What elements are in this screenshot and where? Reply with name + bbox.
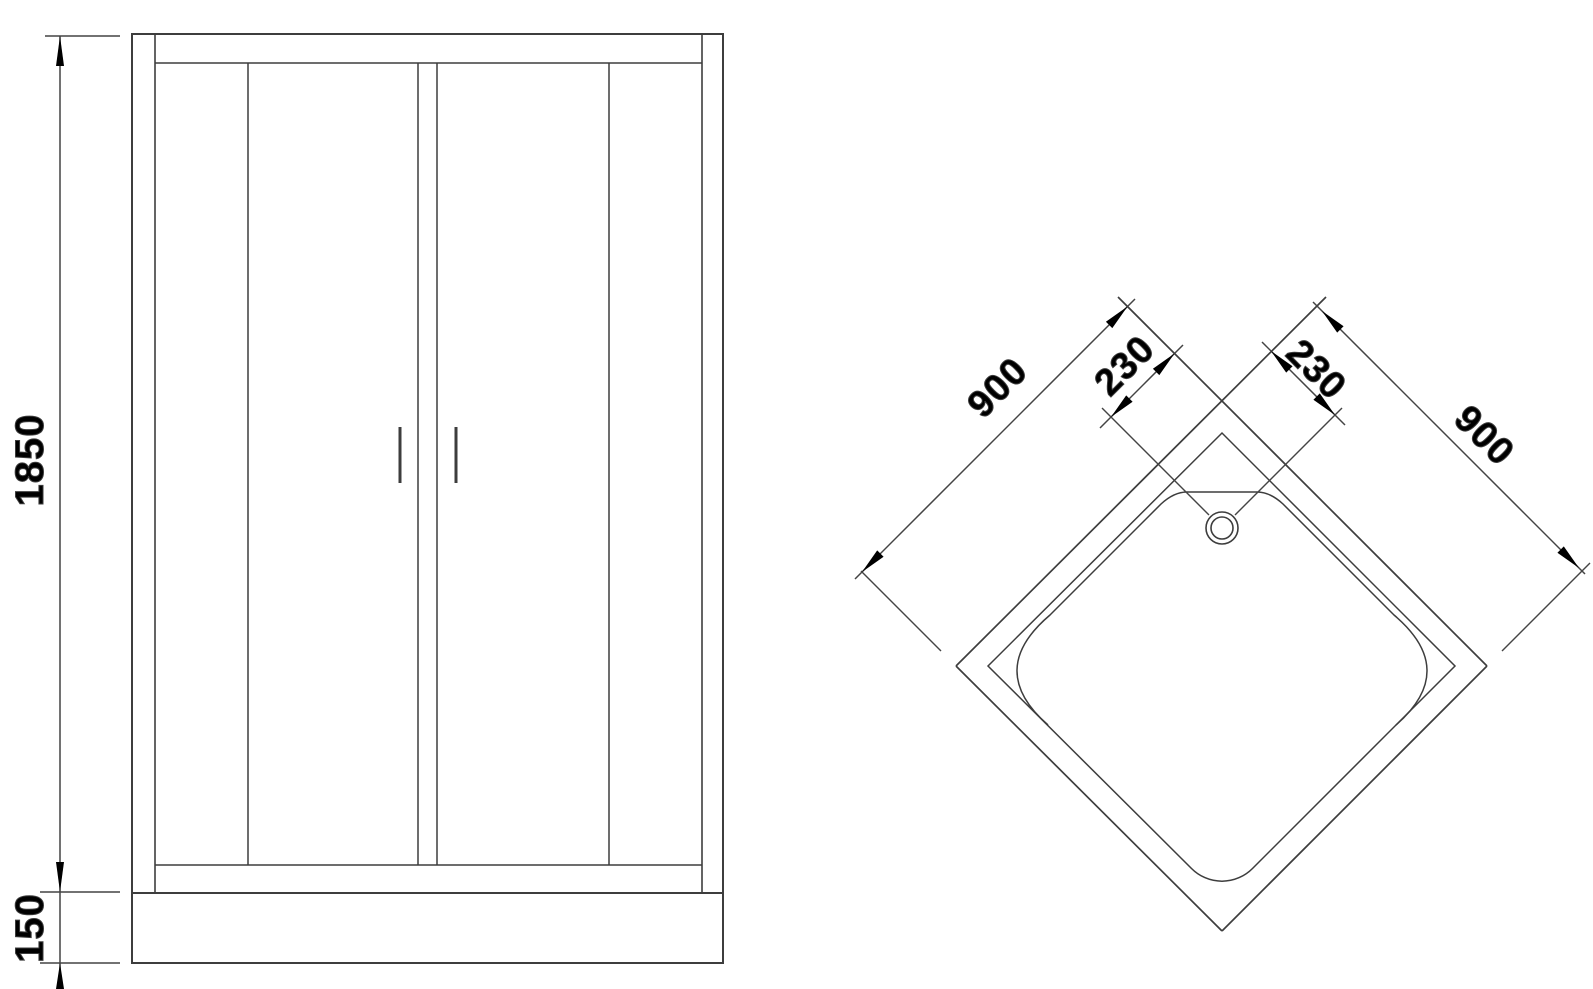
drain-offset-left-label: 230 [1087, 328, 1164, 405]
arrow-down-icon [56, 862, 64, 892]
left-edge-dimension-label: 900 [960, 350, 1037, 427]
tray-edge-lower-left [956, 666, 1222, 931]
tray-height-dimension-label: 150 [8, 893, 52, 963]
tray-inner-rim [988, 433, 1455, 881]
arrow-down-left-icon [862, 550, 884, 572]
arrow-up-left-icon [1322, 311, 1344, 333]
drain-inner-circle [1211, 517, 1233, 539]
arrow-down-right-icon [1557, 546, 1579, 568]
tray-top-view: 900 900 230 230 [855, 297, 1590, 931]
arrow-up-icon [56, 963, 64, 989]
tray-base [132, 893, 723, 963]
drain-extension-lines [1102, 408, 1342, 515]
arrow-up-right-icon [1106, 307, 1128, 329]
frame-outer-rect [132, 34, 723, 893]
drain-offset-right-label: 230 [1278, 332, 1355, 409]
glass-panels [248, 63, 609, 865]
corner-extension-lines [861, 563, 1590, 651]
technical-drawing-canvas: 1850 150 [0, 0, 1593, 989]
right-edge-dimension-label: 900 [1446, 398, 1523, 475]
drawing-page: 1850 150 [0, 0, 1593, 989]
tray-edge-lower-right [1222, 666, 1487, 931]
arrow-up-icon [56, 36, 64, 66]
dimension-line-900-left [855, 299, 1135, 579]
extension-line-left-corner [861, 571, 941, 651]
extension-line-right-corner [1502, 563, 1590, 651]
height-dimension-lines [40, 36, 120, 989]
front-elevation-view: 1850 150 [8, 34, 723, 989]
height-dimension-label: 1850 [8, 414, 52, 507]
tray-outer-outline [956, 297, 1487, 931]
enclosure-frame [132, 34, 723, 893]
drain [1206, 512, 1238, 544]
tray-basin-outline [1017, 492, 1427, 725]
